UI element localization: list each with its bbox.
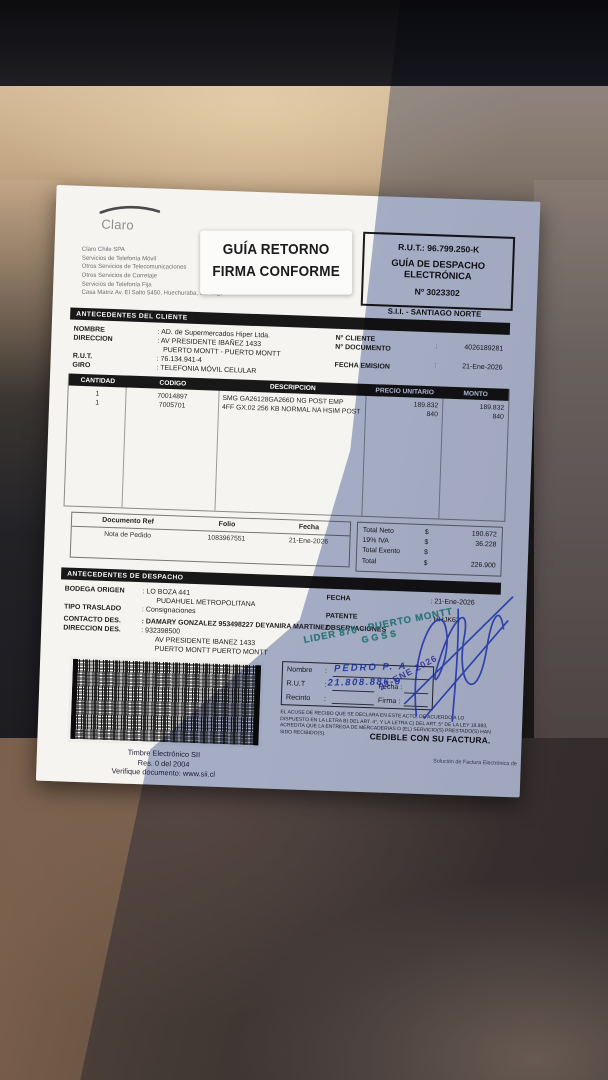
return-sticker-line1: GUÍA RETORNO [200, 241, 352, 258]
totals-box: Total Neto $ 190.672 19% IVA $ 36.228 To… [355, 522, 503, 577]
fecha-emision-value: 21-Ene-2026 [447, 363, 507, 372]
ndocumento-colon: : [435, 343, 437, 350]
bodega-label: BODEGA ORIGEN [64, 585, 124, 594]
claro-swoosh-icon [98, 202, 162, 216]
rut-box: R.U.T.: 96.799.250-K GUÍA DE DESPACHO EL… [361, 232, 515, 311]
signature [394, 583, 525, 727]
colon: : [324, 694, 326, 703]
tipo-traslado-value: : Consignaciones [142, 606, 196, 615]
ref-fecha-value: 21-Ene-2026 [269, 534, 347, 547]
direccion-des-value: : 932398500 [141, 627, 180, 635]
fecha-emision-label: FECHA EMISION [334, 362, 390, 371]
colon: : [325, 666, 327, 675]
footer-note: Solución de Factura Electrónica de [387, 757, 517, 768]
col-cantidad: CANTIDAD [69, 374, 127, 388]
ncliente-label: N° CLIENTE [335, 335, 375, 343]
currency-sign: $ [424, 559, 438, 570]
direccion-des-value3: PUERTO MONTT PUERTO MONTT [154, 646, 267, 657]
ndocumento-label: N° DOCUMENTO [335, 344, 391, 353]
contacto-label: CONTACTO DES. [63, 615, 121, 624]
patente-label: PATENTE [326, 613, 358, 621]
bodega-value: : LO BOZA 441 [142, 588, 190, 597]
dispatch-fecha-label: FECHA [326, 595, 350, 603]
total-value: 226.900 [438, 559, 496, 571]
issuer-rut: R.U.T.: 96.799.250-K [365, 241, 513, 256]
colon: : [324, 680, 326, 689]
document-number: Nº 3023302 [363, 284, 511, 299]
rut-line [332, 690, 374, 692]
client-nombre-label: NOMBRE [74, 326, 105, 334]
currency-sign: $ [424, 548, 438, 559]
ref-folio-value: 1083967551 [183, 531, 269, 544]
client-direccion-label: DIRECCION [73, 335, 113, 343]
ndocumento-value: 4026189281 [447, 344, 507, 353]
dispatch-document-paper: Claro Claro Chile SPA Servicios de Telef… [36, 185, 541, 798]
claro-logo: Claro [101, 217, 134, 233]
direccion-des-label: DIRECCION DES. [63, 624, 121, 633]
client-giro-value: : TELEFONIA MÓVIL CELULAR [156, 365, 256, 375]
return-sticker-line2: FIRMA CONFORME [200, 263, 352, 280]
barcode-stop-bar [253, 665, 261, 745]
fecha-emision-colon: : [435, 362, 437, 369]
client-rut-label: R.U.T. [73, 353, 93, 361]
barcode-start-bar [70, 659, 78, 739]
ref-col-fecha: Fecha [270, 520, 348, 536]
client-rut-value: : 76.134.941-4 [157, 356, 202, 365]
return-sticker: GUÍA RETORNO FIRMA CONFORME [200, 231, 352, 295]
client-giro-label: GIRO [72, 362, 90, 370]
currency-sign: $ [424, 538, 438, 549]
items-table: CANTIDAD CODIGO DESCRIPCION PRECIO UNITA… [64, 373, 510, 521]
car-seat-right-edge [534, 180, 608, 765]
tipo-traslado-label: TIPO TRASLADO [64, 603, 121, 612]
photo-of-dispatch-document: Claro Claro Chile SPA Servicios de Telef… [0, 0, 608, 1080]
reception-rut-label: R.U.T [286, 678, 305, 688]
col-monto: MONTO [442, 387, 508, 401]
recinto-line [332, 703, 374, 705]
reference-box: Documento Ref Folio Fecha Nota de Pedido… [70, 512, 351, 568]
car-dashboard [0, 0, 608, 96]
reception-nombre-label: Nombre [287, 664, 313, 674]
pdf417-barcode [67, 656, 264, 749]
total-label: Total [362, 556, 424, 568]
timbre-electronico: Timbre Electrónico SII Res. 0 del 2004 V… [66, 746, 261, 782]
reception-recinto-label: Recinto [286, 692, 311, 702]
currency-sign: $ [425, 528, 439, 539]
